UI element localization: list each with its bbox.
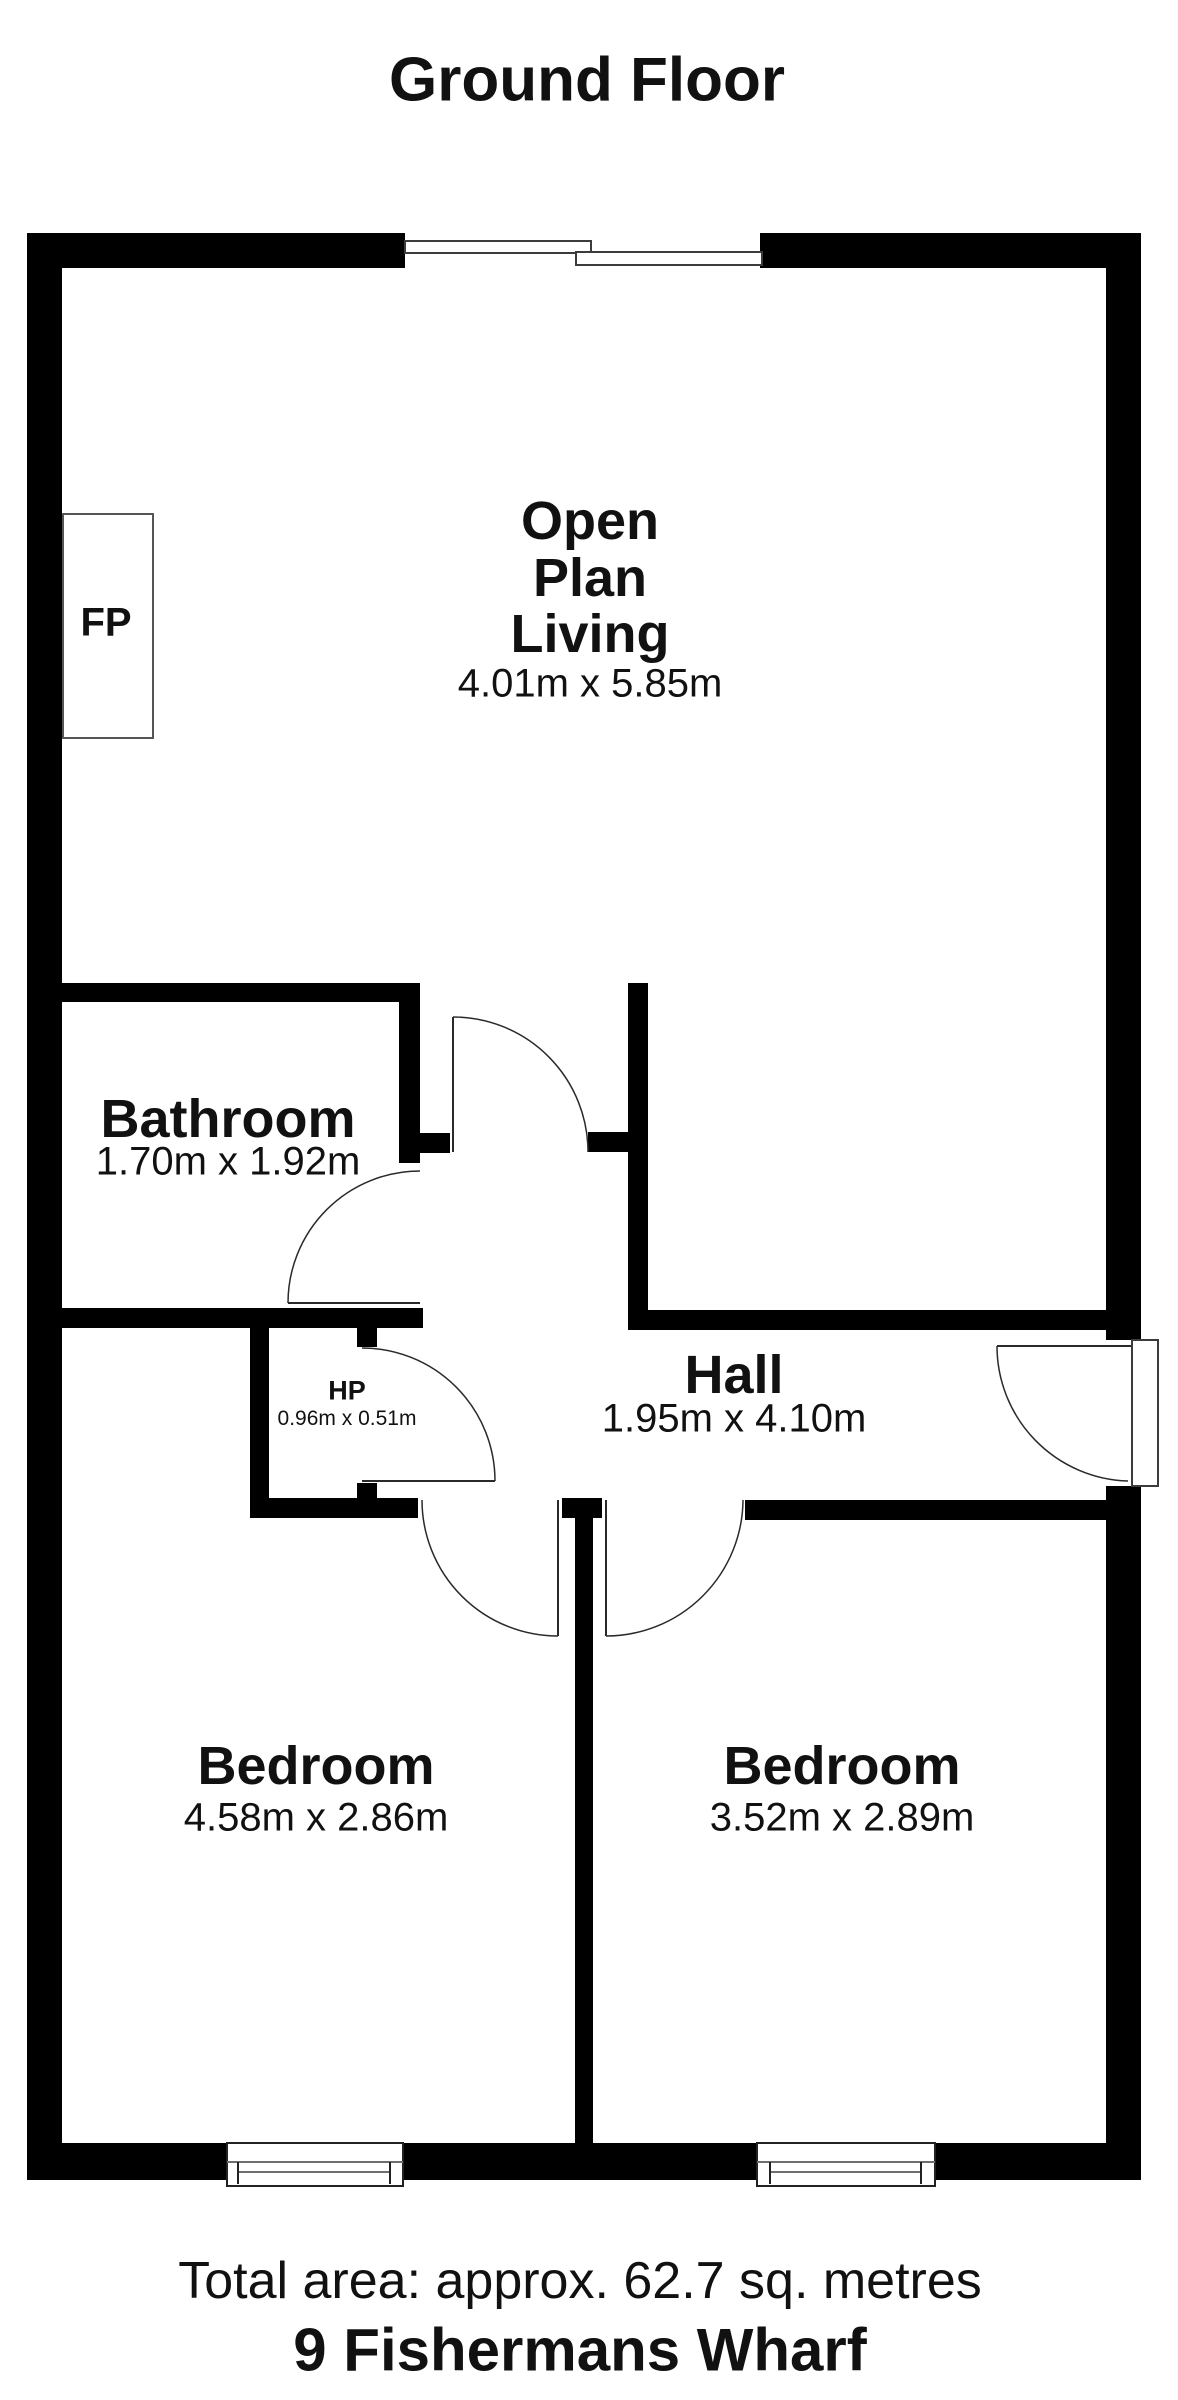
wall-hp-bottom-jamb bbox=[357, 1483, 377, 1498]
door-arc-bathroom bbox=[288, 1171, 420, 1303]
wall-bedroom-divider bbox=[575, 1518, 593, 2143]
wall-hp-bottom bbox=[250, 1498, 418, 1518]
wall-hp-top-jamb bbox=[357, 1328, 377, 1347]
wall-bottom-right bbox=[935, 2143, 1141, 2180]
room-label-open-plan-line2: Plan bbox=[533, 547, 647, 609]
wall-top-right bbox=[760, 233, 1141, 268]
door-arc-bedroom-left bbox=[422, 1500, 558, 1636]
wall-bathroom-top bbox=[62, 983, 420, 1002]
address-text: 9 Fishermans Wharf bbox=[293, 2316, 867, 2385]
floorplan-drawing bbox=[0, 0, 1178, 2400]
wall-divider-top-jamb bbox=[562, 1498, 602, 1518]
wall-bottom-middle bbox=[403, 2143, 757, 2180]
page-title: Ground Floor bbox=[389, 45, 785, 116]
room-dims-bedroom-left: 4.58m x 2.86m bbox=[184, 1796, 449, 1841]
wall-bathroom-right bbox=[399, 1002, 420, 1163]
wall-hp-left bbox=[250, 1328, 269, 1518]
wall-right-upper bbox=[1106, 233, 1141, 1340]
window-top-1 bbox=[405, 241, 591, 253]
room-dims-open-plan: 4.01m x 5.85m bbox=[458, 662, 723, 707]
wall-left bbox=[27, 233, 62, 2180]
wall-bottom-left bbox=[27, 2143, 227, 2180]
room-label-bedroom-right: Bedroom bbox=[723, 1735, 960, 1797]
total-area-text: Total area: approx. 62.7 sq. metres bbox=[178, 2251, 982, 2311]
wall-right-lower bbox=[1106, 1486, 1141, 2180]
window-bottom-right-frame bbox=[757, 2143, 935, 2186]
window-bottom-right bbox=[757, 2143, 935, 2186]
fireplace-label: FP bbox=[80, 601, 131, 646]
door-arc-front bbox=[997, 1346, 1128, 1481]
window-top-2 bbox=[576, 252, 762, 265]
room-dims-bedroom-right: 3.52m x 2.89m bbox=[710, 1796, 975, 1841]
wall-hall-bottom-right bbox=[745, 1500, 1106, 1520]
room-label-hp: HP bbox=[328, 1376, 366, 1407]
room-dims-hall: 1.95m x 4.10m bbox=[602, 1397, 867, 1442]
room-dims-bathroom: 1.70m x 1.92m bbox=[96, 1140, 361, 1185]
wall-bathroom-door-jamb bbox=[420, 1133, 450, 1153]
floorplan-page: Ground Floor Open Plan Living 4.01m x 5.… bbox=[0, 0, 1178, 2400]
wall-bathroom-bottom bbox=[27, 1308, 423, 1328]
room-label-open-plan-line3: Living bbox=[511, 603, 670, 665]
window-bottom-left bbox=[227, 2143, 403, 2186]
front-door-threshold bbox=[1132, 1340, 1158, 1486]
door-arc-living-hall bbox=[453, 1017, 588, 1152]
room-label-bedroom-left: Bedroom bbox=[197, 1735, 434, 1797]
wall-hall-top-right bbox=[648, 1310, 1106, 1330]
wall-living-hall-stub bbox=[628, 983, 648, 1330]
wall-hall-top-left-piece bbox=[588, 1132, 628, 1152]
room-label-open-plan-line1: Open bbox=[521, 490, 659, 552]
window-bottom-left-frame bbox=[227, 2143, 403, 2186]
wall-top-left bbox=[27, 233, 405, 268]
room-dims-hp: 0.96m x 0.51m bbox=[278, 1407, 417, 1431]
door-arc-bedroom-right bbox=[606, 1500, 743, 1636]
